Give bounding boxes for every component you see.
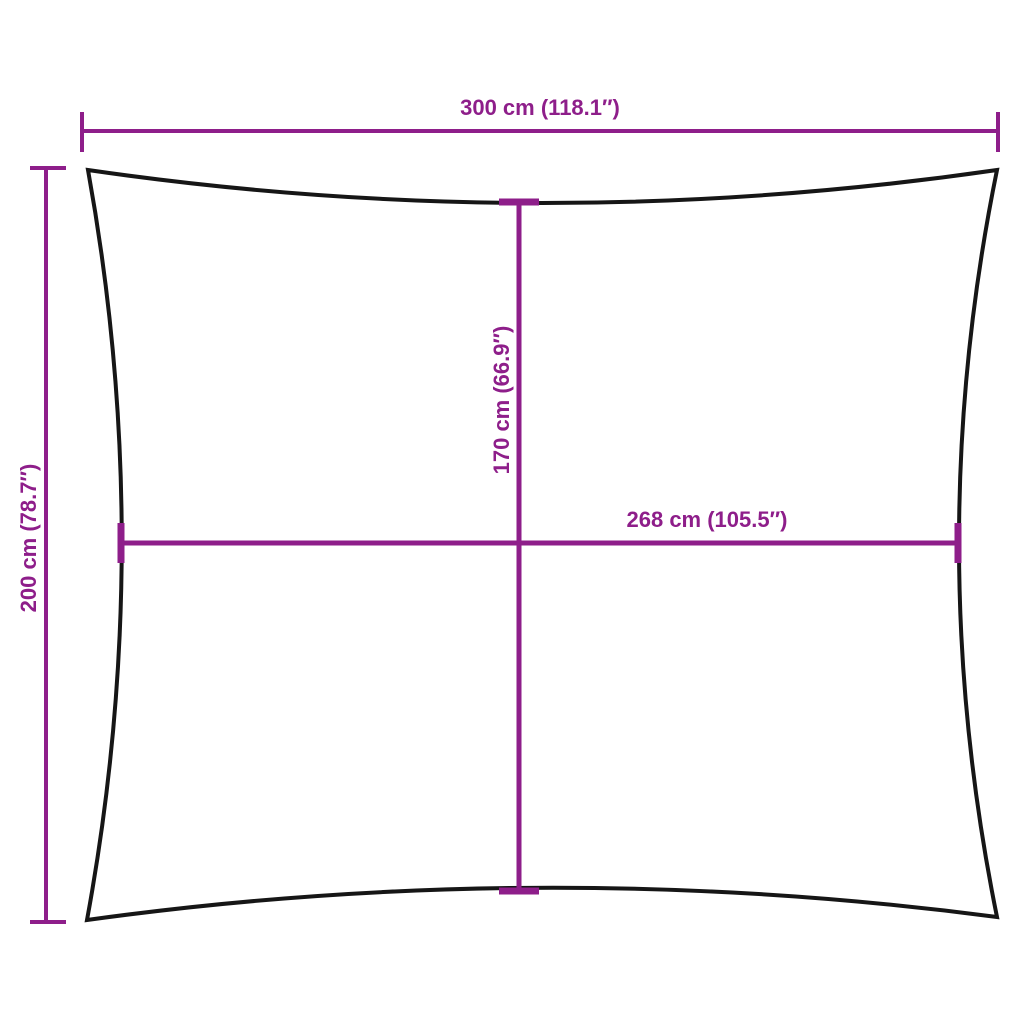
inner-height-label: 170 cm (66.9″) [491, 326, 513, 475]
inner-width-label: 268 cm (105.5″) [627, 509, 788, 531]
left-height-label: 200 cm (78.7″) [18, 464, 40, 613]
dimension-diagram: 300 cm (118.1″) 200 cm (78.7″) 170 cm (6… [0, 0, 1024, 1024]
diagram-canvas [0, 0, 1024, 1024]
top-width-label: 300 cm (118.1″) [460, 97, 620, 119]
